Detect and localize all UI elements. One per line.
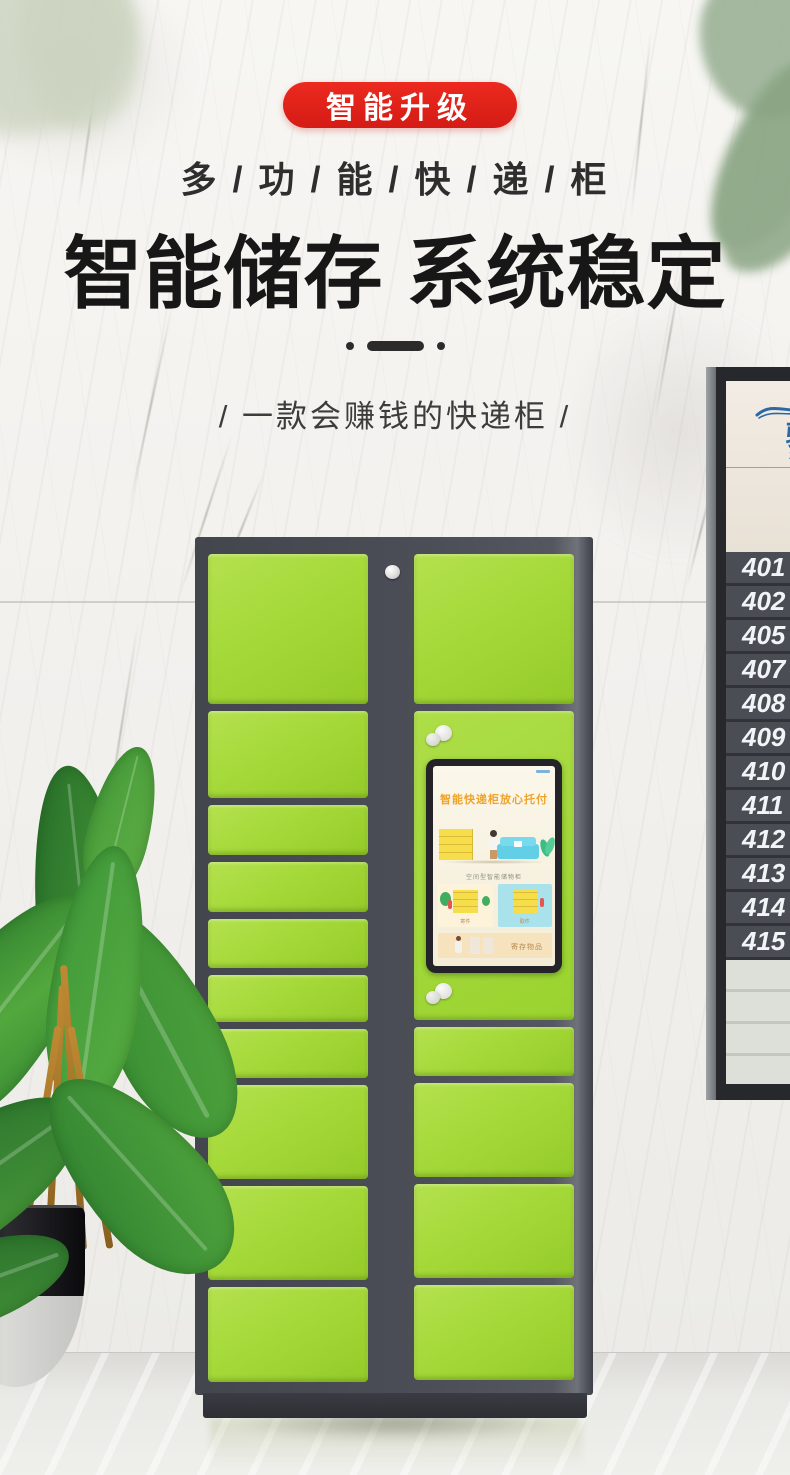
locker-door: [414, 1027, 574, 1076]
locker-door: [414, 554, 574, 704]
screen-title: 智能快递柜放心托付: [433, 791, 555, 807]
hero-ground-shadow: [442, 860, 546, 864]
divider-dot: [437, 342, 445, 350]
locker-door: [208, 554, 368, 704]
room-number-row: 407: [726, 654, 790, 688]
card-label: 寄件: [438, 918, 493, 925]
locker-door: [414, 1285, 574, 1380]
divider-bar: [367, 341, 424, 351]
cabinet-floor-reflection: [210, 1419, 582, 1467]
console-panel: 智能快递柜放心托付 空间型智能储物柜: [414, 711, 574, 1020]
banner-label: 寄存物品: [511, 942, 543, 952]
cabinet-lock: [385, 565, 400, 579]
room-number-row: 405: [726, 620, 790, 654]
hero-sofa-illustration: [497, 844, 539, 859]
divider-dot: [346, 342, 354, 350]
potted-plant: [0, 730, 245, 1420]
console-screen: 智能快递柜放心托付 空间型智能储物柜: [426, 759, 562, 973]
sign-logo-subtext: ZH: [744, 451, 790, 461]
room-number-row: 412: [726, 824, 790, 858]
screen-card-pickup: 取件: [498, 884, 553, 927]
product-poster: 智能升级 多 / 功 / 能 / 快 / 递 / 柜 智能储存 系统稳定 / 一…: [0, 0, 790, 1475]
room-number-row: 409: [726, 722, 790, 756]
locker-door: [414, 1184, 574, 1278]
screen-hero-illustration: [438, 811, 552, 867]
room-number-row: 408: [726, 688, 790, 722]
promo-headline: 智能储存 系统稳定: [0, 209, 790, 324]
locker-column-right: 智能快递柜放心托付 空间型智能储物柜: [414, 554, 574, 1380]
promo-subtitle: / 一款会赚钱的快递柜 /: [0, 391, 790, 436]
console-button: [426, 733, 440, 746]
console-button: [426, 991, 440, 1004]
hero-locker-illustration: [439, 829, 473, 860]
sign-header-divider: [726, 467, 790, 468]
mini-person-illustration: [448, 900, 452, 909]
promo-divider: [0, 341, 790, 351]
room-number-sign: 骏 ZH 401 402 405 407 408 409 410 411 412…: [706, 367, 790, 1100]
mini-person-illustration: [540, 898, 544, 907]
room-number-row: 415: [726, 926, 790, 960]
promo-badge-label: 智能升级: [326, 83, 474, 127]
hero-person-illustration: [490, 850, 497, 859]
screen-status-icon: [536, 770, 550, 773]
screen-card-deposit: 寄件: [438, 884, 493, 927]
tree-illustration: [482, 896, 490, 906]
hero-plant-illustration: [541, 831, 554, 857]
card-label: 取件: [498, 918, 553, 925]
sign-empty-row: [726, 960, 790, 992]
banner-locker-illustration: [470, 937, 480, 954]
sign-empty-row: [726, 1024, 790, 1056]
screen-banner: 寄存物品: [438, 933, 552, 958]
promo-badge: 智能升级: [283, 82, 517, 128]
room-number-row: 401: [726, 552, 790, 586]
hero-person-illustration: [490, 830, 497, 837]
banner-person-illustration: [455, 941, 462, 953]
parcel-locker-cabinet: 智能快递柜放心托付 空间型智能储物柜: [195, 537, 593, 1395]
room-number-row: 410: [726, 756, 790, 790]
sign-frame: 骏 ZH 401 402 405 407 408 409 410 411 412…: [716, 367, 790, 1100]
screen-caption: 空间型智能储物柜: [433, 872, 555, 881]
sign-side-face: [706, 367, 716, 1100]
sign-empty-row: [726, 1056, 790, 1084]
promo-tagline: 多 / 功 / 能 / 快 / 递 / 柜: [0, 151, 790, 203]
console-buttons: [426, 725, 456, 751]
sign-empty-row: [726, 992, 790, 1024]
locker-door: [414, 1083, 574, 1177]
room-number-row: 414: [726, 892, 790, 926]
room-number-row: 411: [726, 790, 790, 824]
console-buttons: [426, 983, 456, 1009]
cabinet-base: [203, 1393, 587, 1418]
mini-locker-illustration: [453, 890, 478, 913]
room-number-row: 413: [726, 858, 790, 892]
room-number-row: 402: [726, 586, 790, 620]
screen-content: 智能快递柜放心托付 空间型智能储物柜: [433, 766, 555, 966]
mini-locker-illustration: [513, 890, 538, 913]
screen-cards: 寄件 取件: [438, 884, 552, 927]
